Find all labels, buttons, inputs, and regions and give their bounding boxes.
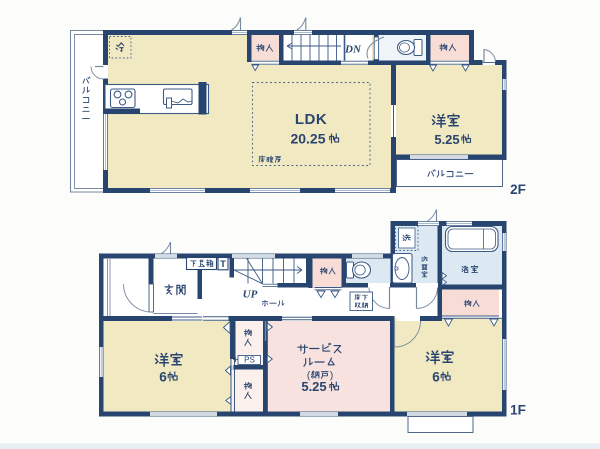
svg-text:6: 6 bbox=[159, 370, 167, 385]
svg-text:6: 6 bbox=[432, 370, 440, 385]
svg-text:5.25: 5.25 bbox=[301, 379, 326, 394]
svg-text:T: T bbox=[220, 259, 226, 270]
svg-text:5.25: 5.25 bbox=[434, 132, 459, 147]
svg-text:UP: UP bbox=[243, 289, 258, 301]
svg-text:PS: PS bbox=[244, 356, 255, 365]
svg-text:DN: DN bbox=[344, 44, 362, 56]
svg-text:2F: 2F bbox=[510, 182, 526, 197]
svg-text:1F: 1F bbox=[510, 403, 526, 418]
svg-text:20.25: 20.25 bbox=[290, 131, 325, 147]
svg-text:): ) bbox=[330, 371, 333, 382]
svg-text:LDK: LDK bbox=[295, 111, 327, 128]
